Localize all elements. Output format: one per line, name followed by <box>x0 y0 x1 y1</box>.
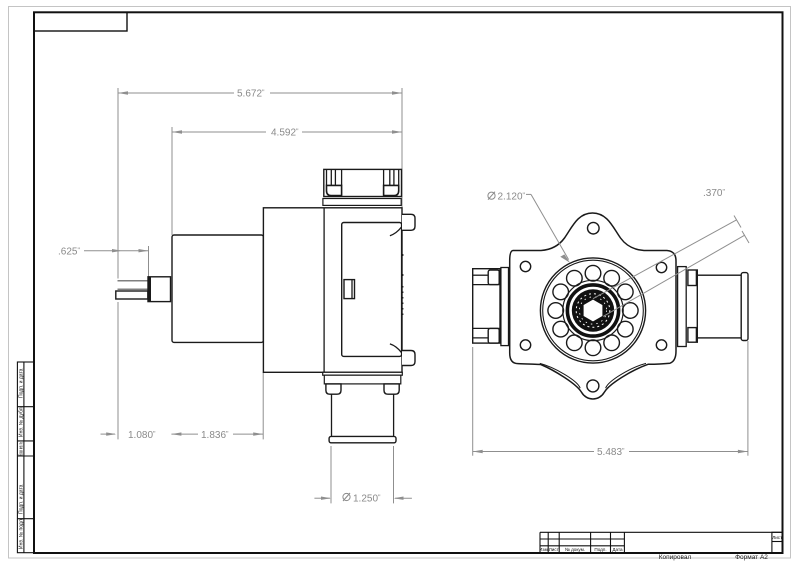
svg-text:1.836": 1.836" <box>201 430 229 441</box>
svg-text:№ докум.: № докум. <box>565 547 585 552</box>
svg-text:Подп.: Подп. <box>594 547 606 552</box>
svg-text:Подп. и дата: Подп. и дата <box>19 484 25 514</box>
svg-text:Лист: Лист <box>772 535 783 540</box>
svg-text:2.120": 2.120" <box>498 192 526 203</box>
svg-text:Инв. № подл.: Инв. № подл. <box>19 518 25 549</box>
svg-text:5.672": 5.672" <box>237 89 265 100</box>
svg-text:Изм.: Изм. <box>539 547 549 552</box>
svg-text:Взам. инв. №: Взам. инв. № <box>19 442 25 456</box>
svg-text:.625": .625" <box>58 247 80 258</box>
svg-text:1.080": 1.080" <box>128 430 156 441</box>
svg-text:Лист: Лист <box>549 547 560 552</box>
svg-text:Инв. № дубл.: Инв. № дубл. <box>19 406 25 437</box>
svg-text:Дата: Дата <box>612 547 623 552</box>
svg-text:1.250": 1.250" <box>353 494 381 505</box>
svg-text:4.592": 4.592" <box>271 128 299 139</box>
svg-text:.370": .370" <box>703 188 725 199</box>
svg-text:Копировал: Копировал <box>659 554 692 561</box>
svg-text:Подп. и дата: Подп. и дата <box>19 368 25 398</box>
svg-text:5.483": 5.483" <box>597 447 625 458</box>
svg-text:Формат А2: Формат А2 <box>735 554 768 561</box>
